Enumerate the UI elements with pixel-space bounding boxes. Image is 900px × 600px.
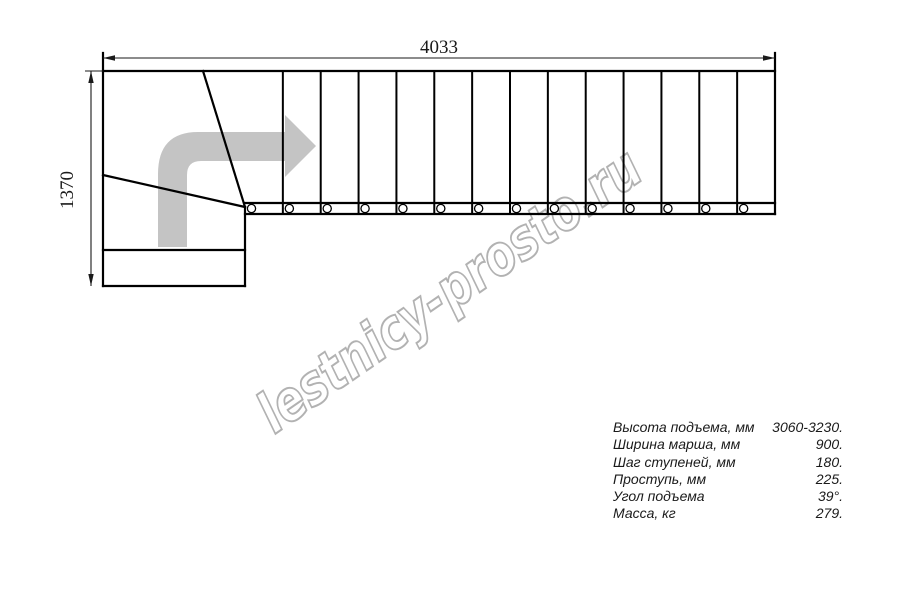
tread-lines bbox=[283, 71, 737, 214]
baluster-circle bbox=[247, 204, 255, 212]
spec-row: Угол подъема 39°. bbox=[613, 488, 843, 505]
baluster-circle bbox=[588, 204, 596, 212]
spec-label: Ширина марша, мм bbox=[613, 436, 740, 453]
dimension-arrowheads bbox=[88, 55, 775, 286]
width-dimension-label: 1370 bbox=[57, 171, 78, 209]
spec-label: Проступь, мм bbox=[613, 471, 706, 488]
stair-drawing-canvas: lestnicy-prosto.ru bbox=[0, 0, 900, 600]
width-dim-arrow-bottom bbox=[88, 274, 93, 286]
spec-value: 225. bbox=[816, 471, 843, 488]
dimension-lines bbox=[85, 58, 775, 286]
spec-label: Шаг ступеней, мм bbox=[613, 454, 736, 471]
baluster-circle bbox=[437, 204, 445, 212]
spec-row: Проступь, мм 225. bbox=[613, 471, 843, 488]
specs-table: Высота подъема, мм 3060-3230. Ширина мар… bbox=[613, 419, 843, 523]
spec-value: 180. bbox=[816, 454, 843, 471]
baluster-circle bbox=[475, 204, 483, 212]
spec-row: Высота подъема, мм 3060-3230. bbox=[613, 419, 843, 436]
spec-row: Масса, кг 279. bbox=[613, 505, 843, 522]
spec-value: 279. bbox=[816, 505, 843, 522]
watermark-text: lestnicy-prosto.ru bbox=[245, 135, 654, 446]
baluster-circle bbox=[626, 204, 634, 212]
baluster-circle bbox=[512, 204, 520, 212]
baluster-circle bbox=[550, 204, 558, 212]
baluster-circle bbox=[361, 204, 369, 212]
baluster-circle bbox=[740, 204, 748, 212]
length-dimension-label: 4033 bbox=[420, 37, 458, 58]
spec-row: Ширина марша, мм 900. bbox=[613, 436, 843, 453]
baluster-circle bbox=[399, 204, 407, 212]
spec-value: 39°. bbox=[818, 488, 843, 505]
length-dim-arrow-right bbox=[763, 55, 775, 60]
width-dim-arrow-top bbox=[88, 71, 93, 83]
spec-value: 900. bbox=[816, 436, 843, 453]
spec-label: Высота подъема, мм bbox=[613, 419, 755, 436]
baluster-circle bbox=[323, 204, 331, 212]
baluster-circle bbox=[664, 204, 672, 212]
spec-row: Шаг ступеней, мм 180. bbox=[613, 454, 843, 471]
baluster-circle bbox=[702, 204, 710, 212]
baluster-circle bbox=[285, 204, 293, 212]
baluster-circles bbox=[247, 204, 747, 212]
stair-outline bbox=[103, 53, 775, 286]
spec-label: Угол подъема bbox=[613, 488, 705, 505]
spec-value: 3060-3230. bbox=[772, 419, 843, 436]
spec-label: Масса, кг bbox=[613, 505, 676, 522]
length-dim-arrow-left bbox=[103, 55, 115, 60]
